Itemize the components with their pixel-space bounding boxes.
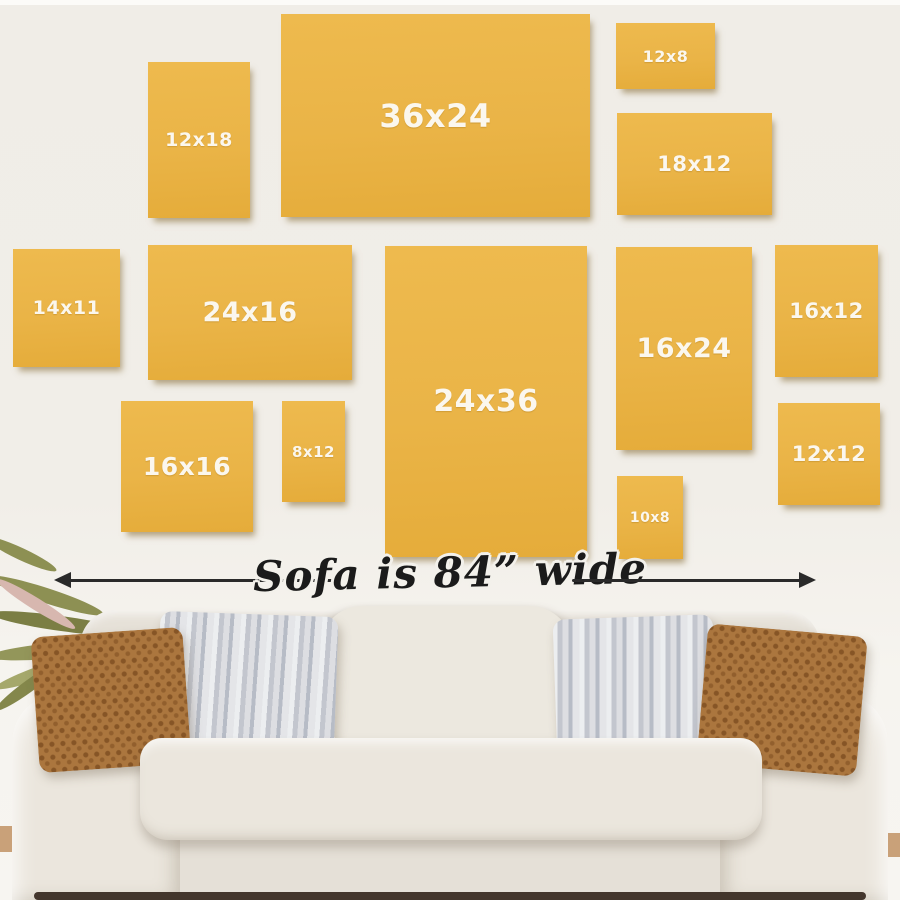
canvas-size-label: 8x12 <box>292 443 335 461</box>
canvas-12x18: 12x18 <box>148 62 250 218</box>
canvas-size-label: 16x24 <box>636 333 731 364</box>
canvas-8x12: 8x12 <box>282 401 345 502</box>
canvas-size-label: 24x36 <box>433 384 538 419</box>
canvas-size-label: 36x24 <box>379 97 491 135</box>
canvas-size-label: 18x12 <box>657 152 732 176</box>
canvas-16x24: 16x24 <box>616 247 752 450</box>
sofa-width-caption: Sofa is 84” wide <box>0 539 900 607</box>
canvas-size-label: 12x8 <box>643 47 689 66</box>
canvas-18x12: 18x12 <box>617 113 772 215</box>
wall-top-strip <box>0 0 900 5</box>
canvas-16x12: 16x12 <box>775 245 878 377</box>
canvas-24x36: 24x36 <box>385 246 587 557</box>
canvas-size-label: 16x16 <box>143 452 231 481</box>
size-guide-infographic: 12x18 36x24 12x8 18x12 14x11 24x16 24x36… <box>0 0 900 900</box>
canvas-size-label: 16x12 <box>789 299 864 323</box>
measure-line-right <box>572 579 810 582</box>
canvas-12x12: 12x12 <box>778 403 880 505</box>
sofa-floor-shadow <box>34 892 866 900</box>
canvas-14x11: 14x11 <box>13 249 120 367</box>
sofa <box>10 600 890 900</box>
sofa-back-center-cushion <box>320 606 572 758</box>
sofa-seat-cushion <box>140 738 762 840</box>
canvas-size-label: 12x12 <box>792 442 867 466</box>
canvas-12x8: 12x8 <box>616 23 715 89</box>
canvas-size-label: 12x18 <box>165 129 233 151</box>
canvas-size-label: 14x11 <box>33 297 101 319</box>
canvas-size-label: 10x8 <box>630 510 670 526</box>
canvas-24x16: 24x16 <box>148 245 352 380</box>
canvas-size-label: 24x16 <box>202 297 297 328</box>
arrowhead-right-icon <box>799 572 816 588</box>
canvas-16x16: 16x16 <box>121 401 253 532</box>
canvas-36x24: 36x24 <box>281 14 590 217</box>
